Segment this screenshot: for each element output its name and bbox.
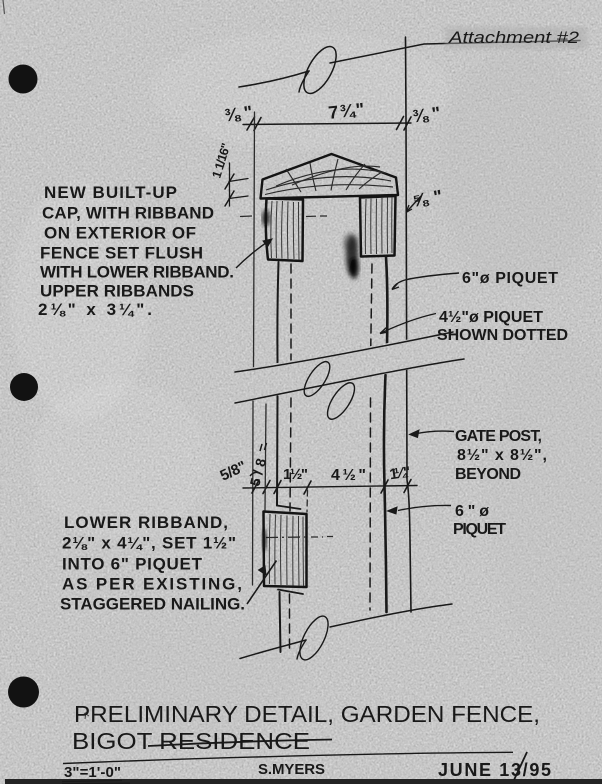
svg-text:4½"ø PIQUET: 4½"ø PIQUET: [439, 309, 543, 326]
svg-text:BEYOND: BEYOND: [455, 466, 521, 483]
svg-text:AS PER EXISTING,: AS PER EXISTING,: [62, 575, 242, 594]
svg-text:INTO 6" PIQUET: INTO 6" PIQUET: [62, 555, 203, 574]
svg-text:ON EXTERIOR OF: ON EXTERIOR OF: [44, 224, 196, 243]
svg-text:PIQUET: PIQUET: [453, 521, 506, 538]
svg-text:NEW BUILT-UP: NEW BUILT-UP: [44, 183, 177, 202]
svg-text:GATE POST,: GATE POST,: [455, 428, 542, 445]
svg-text:1¼": 1¼": [388, 464, 411, 484]
svg-text:8½" x 8½",: 8½" x 8½",: [457, 447, 547, 464]
svg-text:7¾": 7¾": [327, 99, 365, 123]
svg-text:4½": 4½": [331, 467, 366, 484]
svg-text:LOWER RIBBAND,: LOWER RIBBAND,: [64, 513, 228, 532]
svg-text:WITH LOWER RIBBAND.: WITH LOWER RIBBAND.: [40, 263, 234, 282]
svg-text:JUNE 13/95: JUNE 13/95: [438, 760, 551, 780]
svg-text:6"ø: 6"ø: [455, 503, 489, 520]
svg-text:UPPER RIBBANDS: UPPER RIBBANDS: [40, 282, 194, 301]
svg-text:STAGGERED NAILING.: STAGGERED NAILING.: [60, 595, 245, 614]
svg-text:6"ø PIQUET: 6"ø PIQUET: [462, 270, 558, 287]
svg-text:FENCE SET FLUSH: FENCE SET FLUSH: [40, 244, 203, 263]
svg-text:SHOWN DOTTED: SHOWN DOTTED: [437, 327, 568, 344]
svg-text:3"=1'-0": 3"=1'-0": [64, 764, 121, 781]
svg-text:2⅛" x 4¼", SET 1½": 2⅛" x 4¼", SET 1½": [62, 534, 236, 553]
svg-text:PRELIMINARY DETAIL, GARDEN FEN: PRELIMINARY DETAIL, GARDEN FENCE,: [74, 701, 540, 727]
svg-text:Attachment #2: Attachment #2: [448, 29, 579, 47]
svg-text:S.MYERS: S.MYERS: [258, 761, 325, 778]
svg-text:CAP, WITH RIBBAND: CAP, WITH RIBBAND: [42, 204, 214, 223]
svg-text:1½": 1½": [283, 466, 308, 483]
